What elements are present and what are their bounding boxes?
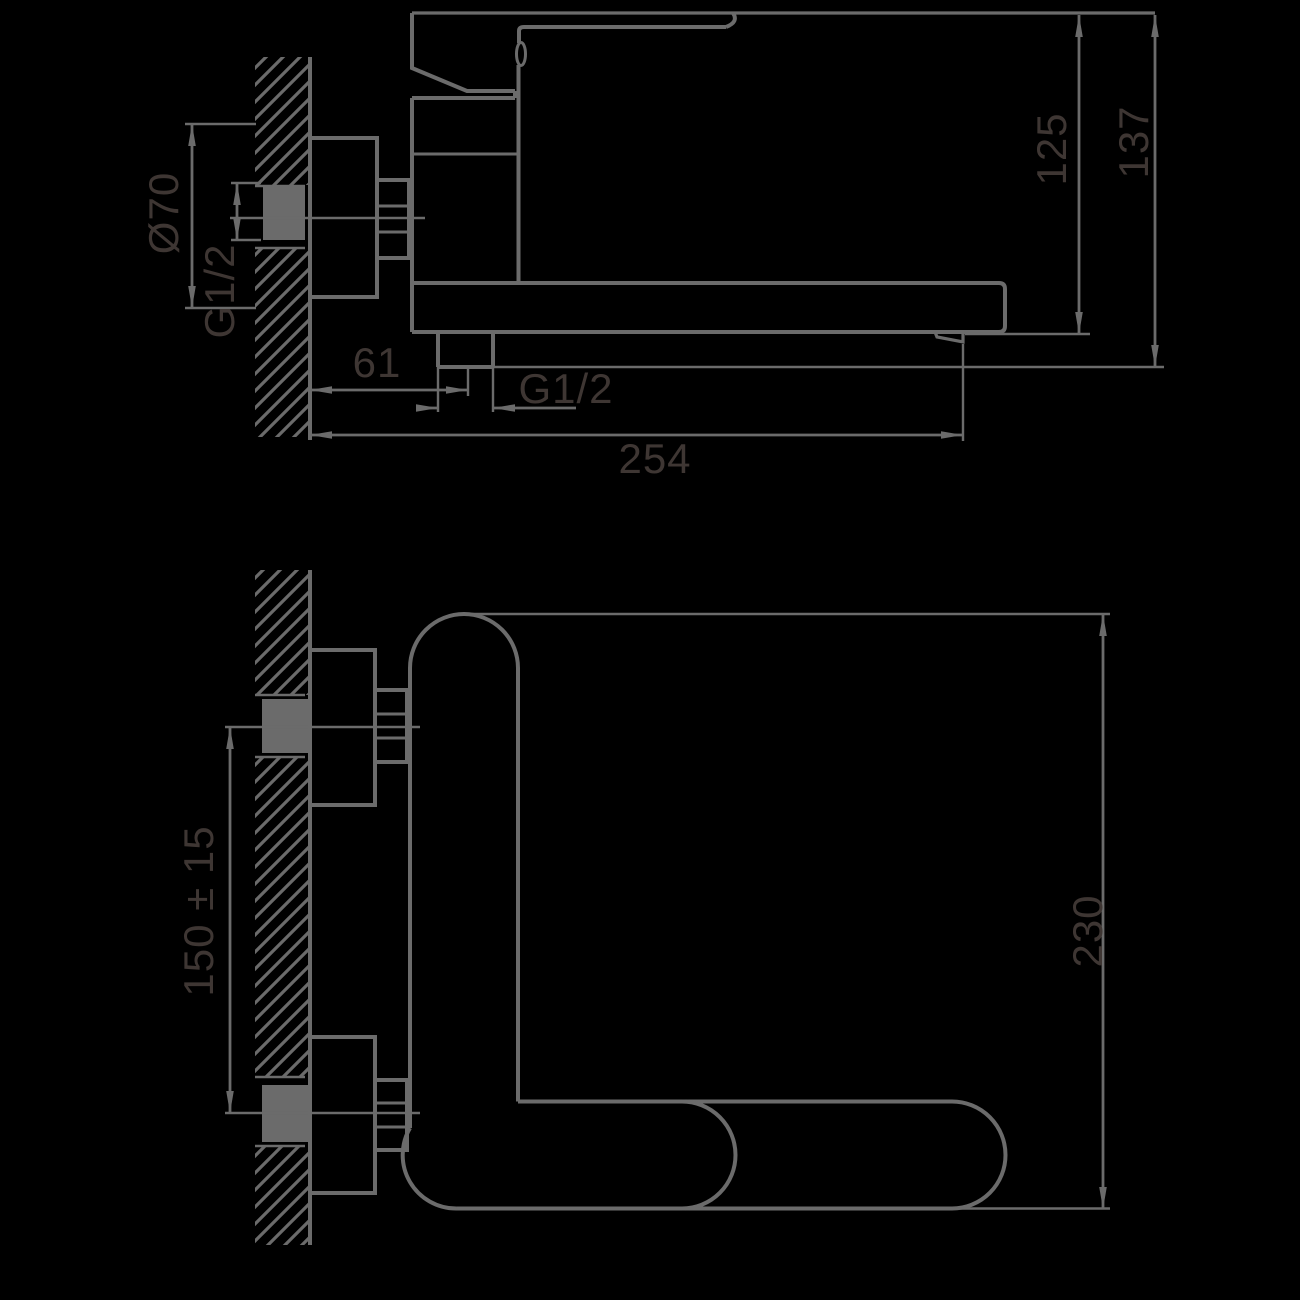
dim-label-outlet-thread: G1/2 [518,368,613,410]
dim-height-137 [493,15,1164,367]
plan-view [225,570,1110,1245]
dim-label-inlet-spacing: 150 ± 15 [178,825,220,996]
dim-label-overall-depth: 230 [1067,894,1109,967]
dim-label-height-125: 125 [1031,112,1073,185]
drawing-canvas [0,0,1300,1300]
side-view-spout [412,283,1005,332]
side-view-outlet-fitting [438,332,493,367]
side-view [185,13,1164,441]
plan-view-flange-bottom [310,1037,375,1193]
plan-view-spout-end-cap [952,1102,1005,1209]
plan-view-nut-bottom-facets [375,1103,407,1127]
dim-spout-reach [310,344,963,441]
side-view-wall-connector [263,185,305,240]
dim-label-flange-diameter: Ø70 [143,172,185,254]
side-view-aerator [935,332,963,342]
dim-inlet-thread [231,183,261,240]
side-view-handle-lever [412,13,1155,66]
dim-label-spout-reach: 254 [618,438,691,480]
dim-label-height-137: 137 [1113,105,1155,178]
dim-label-inlet-thread: G1/2 [199,243,241,338]
plan-view-inlet-centerlines [225,727,420,1113]
plan-view-nut-bottom [375,1080,407,1150]
plan-view-faucet-body [410,614,518,1128]
plan-view-wall-hatch [255,570,310,1245]
plan-view-lever-end-cap [682,1102,736,1209]
plan-view-body-left-cap [403,1128,457,1209]
dim-label-outlet-offset: 61 [353,342,402,384]
dim-overall-depth [468,614,1110,1209]
technical-drawing-page: Ø70 G1/2 61 G1/2 254 125 137 150 ± 15 23… [0,0,1300,1300]
